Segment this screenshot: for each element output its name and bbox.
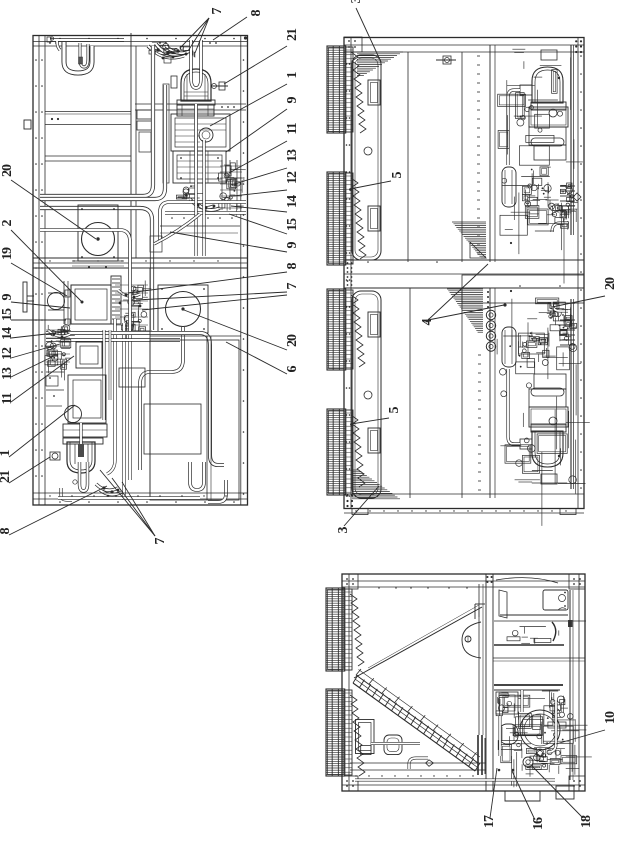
svg-text:7: 7 [285,283,300,290]
svg-text:12: 12 [0,347,15,360]
svg-text:14: 14 [285,195,300,208]
svg-text:1: 1 [285,72,300,79]
svg-text:21: 21 [285,28,300,41]
svg-text:11: 11 [285,122,300,134]
svg-text:20: 20 [603,277,617,290]
svg-text:9: 9 [0,294,15,301]
svg-text:8: 8 [0,528,13,535]
svg-text:13: 13 [285,149,300,162]
svg-text:11: 11 [0,392,15,404]
svg-text:2: 2 [0,220,15,227]
svg-text:5: 5 [390,172,405,179]
svg-text:7: 7 [210,8,225,15]
svg-text:9: 9 [285,242,300,249]
svg-text:3: 3 [336,527,351,534]
svg-text:6: 6 [285,366,300,373]
svg-text:21: 21 [0,470,13,483]
svg-text:17: 17 [482,815,497,828]
svg-text:19: 19 [0,247,15,260]
svg-text:15: 15 [285,218,300,231]
svg-text:7: 7 [153,538,168,545]
svg-text:3: 3 [349,0,364,4]
svg-text:18: 18 [579,815,594,828]
svg-text:8: 8 [285,263,300,270]
svg-text:15: 15 [0,308,15,321]
svg-text:16: 16 [531,817,546,830]
svg-text:9: 9 [285,97,300,104]
svg-text:13: 13 [0,367,15,380]
svg-text:10: 10 [603,711,617,724]
svg-text:20: 20 [0,164,15,177]
svg-text:20: 20 [285,334,300,347]
svg-text:5: 5 [387,407,402,414]
svg-text:12: 12 [285,171,300,184]
svg-text:8: 8 [249,10,264,17]
